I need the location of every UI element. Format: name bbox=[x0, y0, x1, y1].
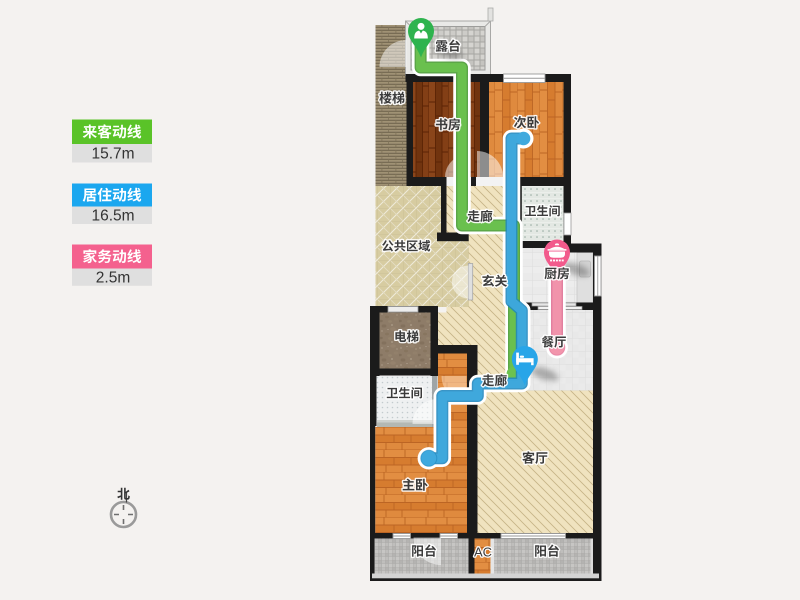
svg-text:AC: AC bbox=[474, 545, 492, 560]
svg-text:15.7m: 15.7m bbox=[91, 146, 134, 163]
svg-text:16.5m: 16.5m bbox=[91, 208, 134, 225]
svg-text:2.5m: 2.5m bbox=[96, 270, 130, 287]
